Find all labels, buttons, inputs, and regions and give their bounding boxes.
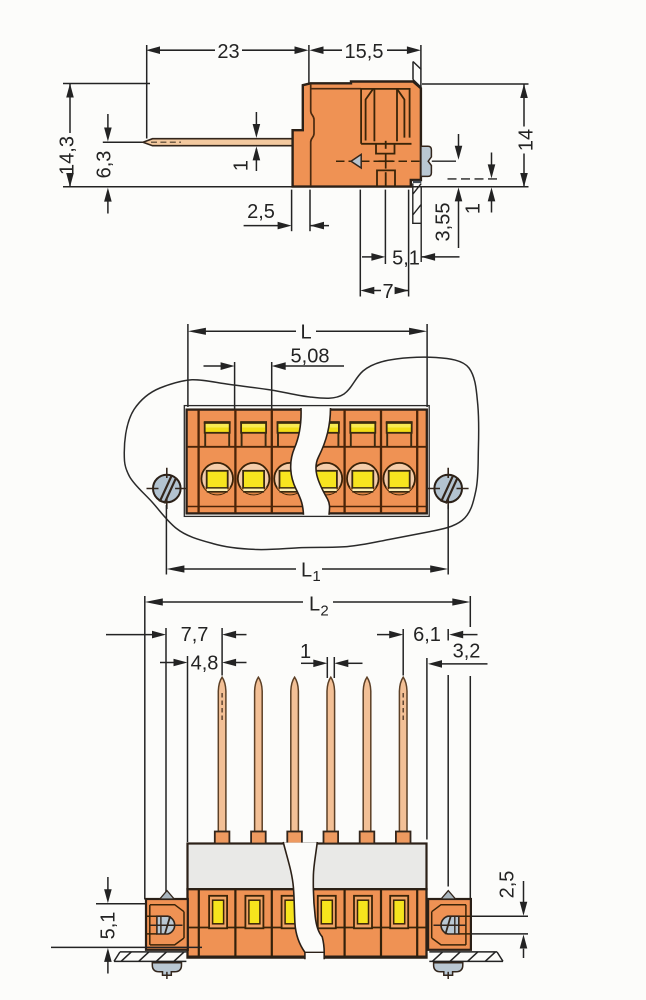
svg-text:L: L (301, 560, 312, 582)
svg-text:2: 2 (320, 603, 328, 620)
svg-text:1: 1 (231, 160, 253, 171)
svg-text:3,55: 3,55 (433, 203, 455, 242)
svg-text:23: 23 (217, 41, 239, 63)
svg-text:6,3: 6,3 (94, 151, 116, 179)
svg-text:L: L (309, 594, 320, 616)
svg-text:L: L (300, 322, 311, 344)
svg-text:2,5: 2,5 (497, 871, 519, 899)
svg-text:14,3: 14,3 (57, 136, 79, 175)
svg-text:3,2: 3,2 (453, 641, 481, 663)
svg-text:1: 1 (300, 641, 311, 663)
svg-text:4,8: 4,8 (191, 653, 219, 675)
svg-text:14: 14 (516, 129, 538, 151)
svg-text:7,7: 7,7 (181, 624, 209, 646)
svg-text:15,5: 15,5 (345, 41, 384, 63)
svg-text:6,1: 6,1 (413, 624, 441, 646)
svg-text:1: 1 (463, 203, 485, 214)
svg-text:2,5: 2,5 (247, 201, 275, 223)
svg-text:7: 7 (382, 281, 393, 303)
svg-text:5,1: 5,1 (392, 248, 420, 270)
svg-text:5,08: 5,08 (291, 346, 330, 368)
svg-text:1: 1 (312, 568, 320, 585)
svg-text:5,1: 5,1 (98, 912, 120, 940)
